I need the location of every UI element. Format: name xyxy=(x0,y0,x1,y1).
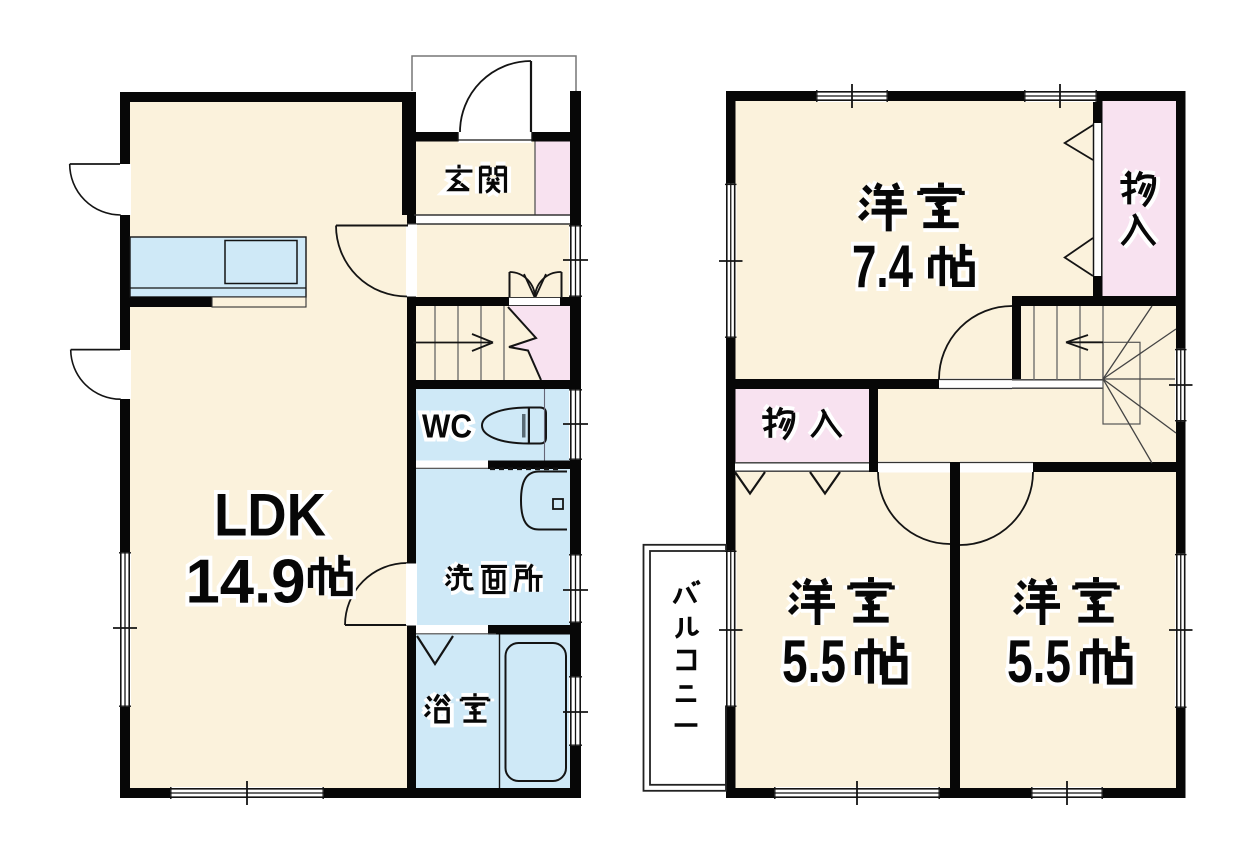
svg-text:14.9: 14.9 xyxy=(186,548,306,617)
svg-text:WC: WC xyxy=(422,408,472,445)
svg-text:7.4: 7.4 xyxy=(852,233,913,300)
svg-text:5.5: 5.5 xyxy=(782,628,846,695)
svg-text:LDK: LDK xyxy=(214,482,326,549)
svg-text:5.5: 5.5 xyxy=(1007,628,1071,695)
